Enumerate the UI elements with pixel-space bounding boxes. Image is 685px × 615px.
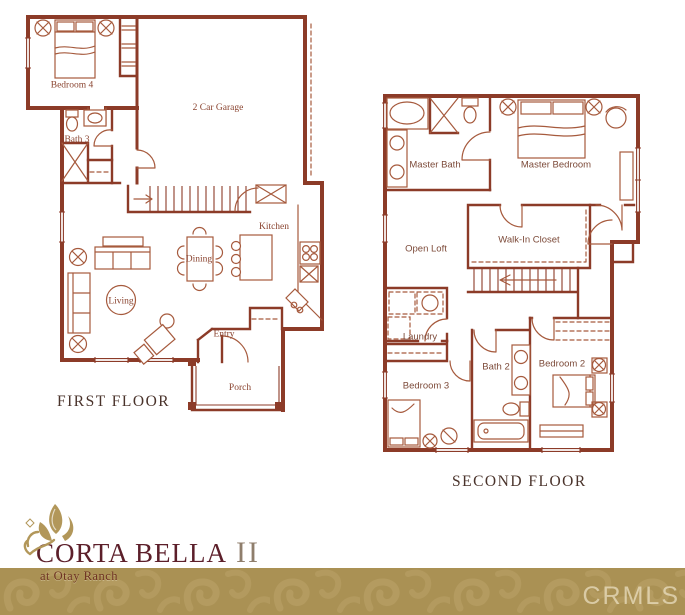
- bed-symbol-bedroom3: [388, 400, 457, 448]
- second-floor-stairs: [474, 268, 570, 292]
- floor-plan-canvas: Bedroom 4 Bath 3 2 Car Garage Kitchen Di…: [0, 0, 685, 500]
- room-label-master-bath: Master Bath: [409, 160, 460, 171]
- kitchen-island: [240, 235, 272, 280]
- corner-chair-symbol: [606, 108, 626, 128]
- bed-symbol-master: [500, 99, 633, 200]
- second-floor-plan: Master Bath Master Bedroom Open Loft Wal…: [382, 96, 641, 490]
- room-label-bedroom4: Bedroom 4: [51, 81, 94, 91]
- room-label-master-bedroom: Master Bedroom: [521, 160, 591, 171]
- room-label-walk-in-closet: Walk-In Closet: [498, 235, 560, 246]
- brand-tagline: at Otay Ranch: [40, 569, 118, 584]
- bath2-fixtures: [474, 345, 530, 442]
- room-label-laundry: Laundry: [403, 332, 438, 343]
- crmls-watermark: CRMLS: [582, 582, 680, 611]
- room-label-open-loft: Open Loft: [405, 244, 447, 255]
- brand-name-suffix: II: [236, 536, 260, 569]
- first-floor-plan: Bedroom 4 Bath 3 2 Car Garage Kitchen Di…: [25, 17, 322, 410]
- room-label-garage: 2 Car Garage: [193, 103, 244, 113]
- master-bath-fixtures: [387, 98, 478, 187]
- room-label-bedroom2: Bedroom 2: [539, 359, 585, 370]
- room-label-entry: Entry: [213, 330, 234, 340]
- room-label-bath2: Bath 2: [482, 362, 509, 373]
- room-label-living: Living: [108, 297, 134, 307]
- room-label-bath3: Bath 3: [64, 135, 89, 145]
- flower-logo-icon: [18, 496, 88, 562]
- second-floor-walls: [385, 96, 638, 450]
- floorplan-page: Bedroom 4 Bath 3 2 Car Garage Kitchen Di…: [0, 0, 685, 615]
- title-first-floor: FIRST FLOOR: [57, 393, 170, 410]
- room-label-porch: Porch: [229, 383, 251, 393]
- room-label-bedroom3: Bedroom 3: [403, 381, 449, 392]
- room-label-kitchen: Kitchen: [259, 222, 289, 232]
- title-second-floor: SECOND FLOOR: [452, 473, 587, 490]
- first-floor-stairs: [134, 186, 246, 212]
- second-floor-windows: [382, 103, 641, 453]
- room-label-dining: Dining: [186, 255, 213, 265]
- window-seat: [620, 152, 633, 200]
- kitchen-fixtures: [232, 185, 323, 320]
